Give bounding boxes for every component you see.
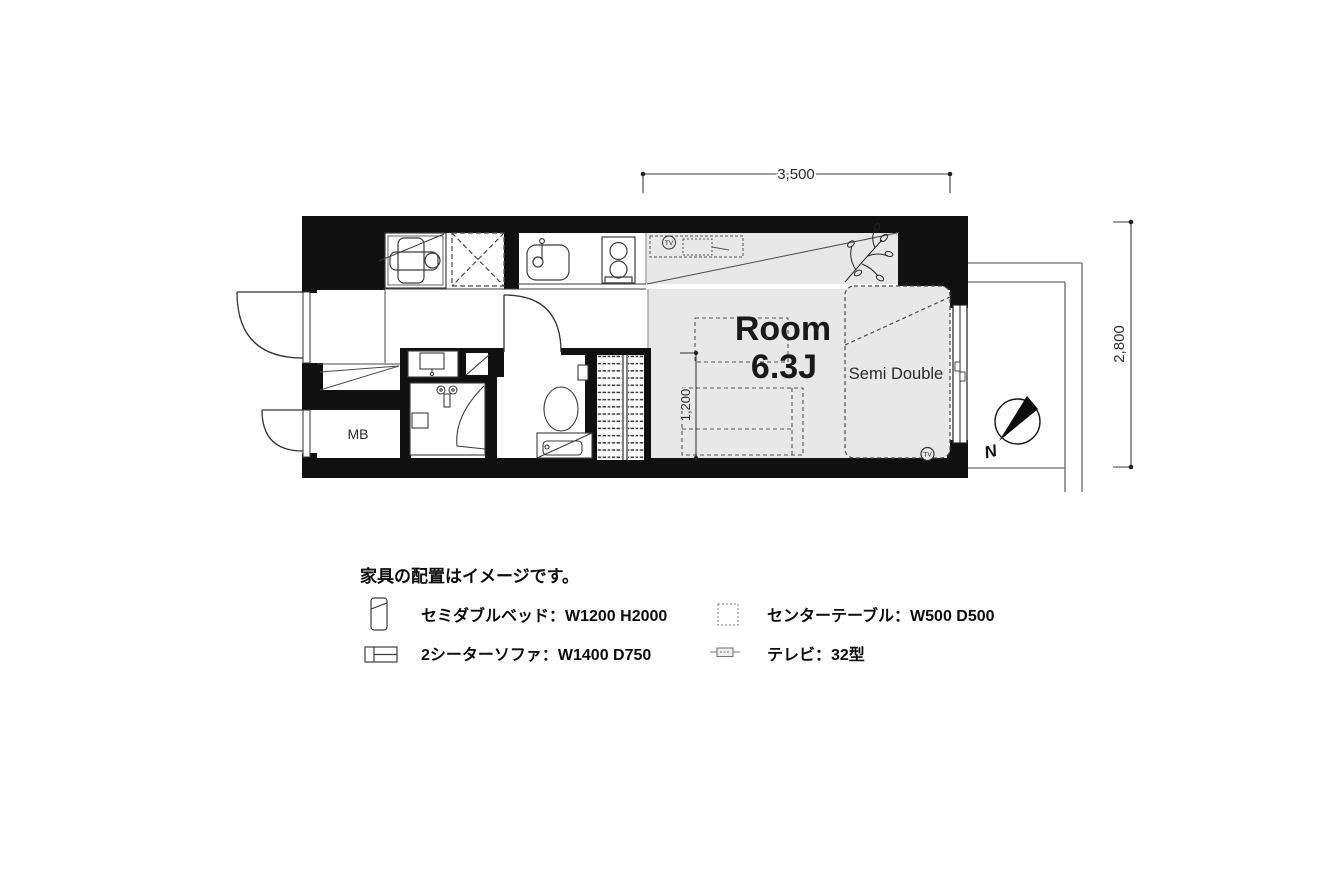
kitchen-sink [527,239,569,280]
refrigerator-space [452,233,504,286]
legend-item-table: センターテーブル：W500 D500 [767,606,995,625]
tv-badge: TV [665,240,674,247]
room-size-label: 6.3J [751,348,817,386]
shower-room [410,383,485,455]
table-icon [718,604,738,625]
toilet [537,365,592,458]
sofa-icon [365,647,397,662]
washing-machine-pan [379,233,446,288]
bed-tv-badge: TV [923,452,932,459]
closet [597,355,644,460]
dimension-right-label: 2,800 [1111,325,1128,363]
meter-box-door [262,410,310,457]
entrance-step-lines [317,290,400,390]
balcony [966,263,1082,492]
legend-note: 家具の配置はイメージです。 [360,566,579,586]
legend-item-sofa: 2シーターソファ：W1400 D750 [421,646,651,664]
floor-plan: TV [0,0,1330,869]
legend: 家具の配置はイメージです。 セミダブルベッド：W1200 H2000 センターテ… [360,566,995,664]
window [953,305,967,443]
compass [995,396,1040,444]
washroom-door [466,355,489,375]
compass-n-label: N [982,441,999,463]
hall-door [504,295,561,352]
tv-icon [710,648,740,657]
bed-icon [371,598,387,630]
stove [602,237,635,283]
dimension-inner-label: 1,200 [678,389,693,422]
bed-label: Semi Double [849,365,943,383]
meter-box-label: MB [348,426,369,442]
room-name-label: Room [735,310,831,348]
entrance-door [237,292,310,363]
legend-item-bed: セミダブルベッド：W1200 H2000 [421,606,667,625]
washbasin [408,351,458,377]
dimension-top-label: 3,500 [777,166,815,183]
floor-plan-canvas: TV [0,0,1330,869]
legend-item-tv: テレビ：32型 [767,646,865,664]
